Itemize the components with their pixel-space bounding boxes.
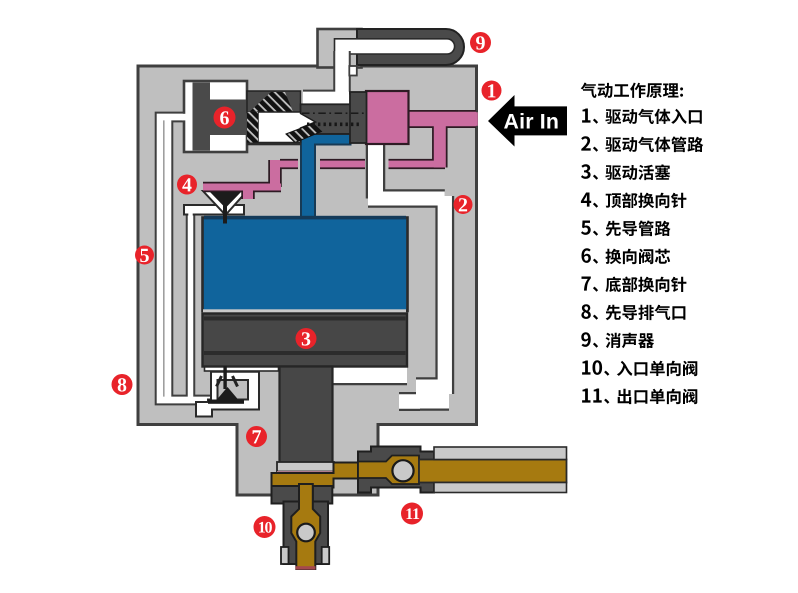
svg-text:Air In: Air In	[504, 110, 560, 134]
